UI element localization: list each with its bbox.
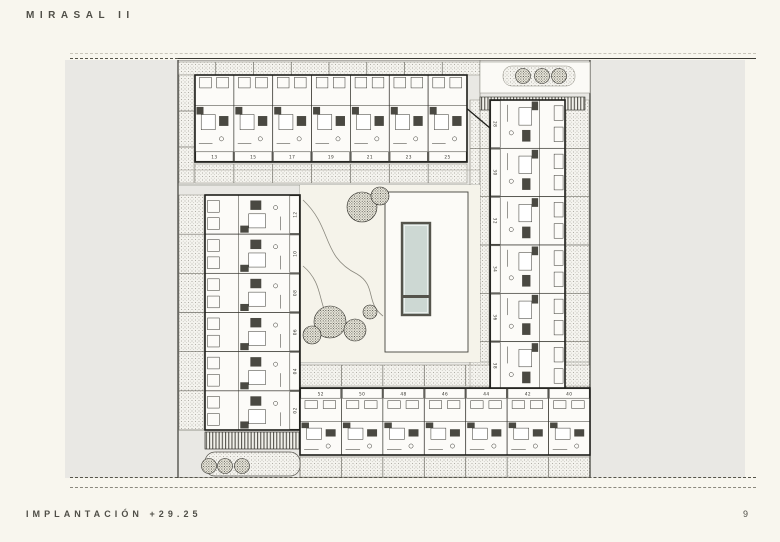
- blueprint-sheet: 1315171921232528303234363812100806040252…: [65, 60, 745, 478]
- unit-number: 32: [492, 218, 498, 224]
- unit-number: 25: [444, 154, 450, 160]
- housing-unit: 36: [490, 293, 565, 341]
- unit-number: 19: [328, 154, 334, 160]
- top-rule-dashed: [70, 53, 756, 54]
- housing-unit: 40: [549, 388, 590, 455]
- housing-unit: 46: [424, 388, 465, 455]
- unit-number: 21: [367, 154, 373, 160]
- garden-strip-top: [178, 62, 480, 75]
- garden-strip-below-top-row: [195, 164, 467, 183]
- drawing-caption: IMPLANTACIÓN +29.25: [26, 509, 202, 519]
- top-rule-solid: [178, 58, 756, 59]
- garden-strip-top-left: [179, 75, 194, 183]
- garden-strip-below-bottom-row: [300, 457, 590, 477]
- housing-unit: 06: [205, 313, 300, 352]
- top-rule-left: [70, 58, 178, 59]
- housing-unit: 38: [490, 342, 565, 390]
- tree-icon: [344, 319, 366, 341]
- unit-number: 44: [483, 391, 489, 397]
- portfolio-page: MIRASAL II 13151719212325283032343638121…: [0, 0, 780, 542]
- swimming-pool: [402, 223, 430, 315]
- bottom-rule-dashed: [70, 477, 756, 478]
- housing-unit: 13: [195, 75, 234, 162]
- housing-unit: 44: [466, 388, 507, 455]
- housing-unit: 50: [341, 388, 382, 455]
- unit-number: 50: [359, 391, 365, 397]
- unit-number: 02: [292, 407, 298, 413]
- unit-number: 04: [292, 368, 298, 374]
- page-number: 9: [743, 509, 748, 519]
- unit-number: 46: [442, 391, 448, 397]
- unit-number: 23: [406, 154, 412, 160]
- site-plan-drawing: 1315171921232528303234363812100806040252…: [65, 60, 745, 478]
- tree-icon: [371, 187, 389, 205]
- housing-unit: 25: [428, 75, 467, 162]
- bottom-rule-dashed-2: [70, 487, 756, 488]
- unit-number: 28: [492, 121, 498, 127]
- unit-number: 48: [400, 391, 406, 397]
- unit-number: 42: [525, 391, 531, 397]
- housing-unit: 19: [312, 75, 351, 162]
- housing-unit: 17: [273, 75, 312, 162]
- housing-unit: 23: [389, 75, 428, 162]
- housing-unit: 34: [490, 245, 565, 293]
- garden-strip-left: [179, 195, 204, 430]
- housing-unit: 52: [300, 388, 341, 455]
- tree-icon: [303, 326, 321, 344]
- unit-number: 17: [289, 154, 295, 160]
- tree-icon: [202, 459, 217, 474]
- tree-icon: [218, 459, 233, 474]
- tree-icon: [516, 69, 531, 84]
- tree-icon: [363, 305, 377, 319]
- left-column-units: 121008060402: [205, 195, 300, 430]
- garden-strip-right-outer: [566, 100, 589, 390]
- tree-icon: [535, 69, 550, 84]
- housing-unit: 30: [490, 148, 565, 196]
- unit-number: 12: [292, 211, 298, 217]
- unit-number: 10: [292, 251, 298, 257]
- unit-number: 13: [211, 154, 217, 160]
- top-row-units: 13151719212325: [195, 75, 467, 162]
- unit-number: 36: [492, 314, 498, 320]
- housing-unit: 32: [490, 197, 565, 245]
- bottom-row-units: 52504846444240: [300, 388, 590, 455]
- housing-unit: 15: [234, 75, 273, 162]
- unit-number: 40: [566, 391, 572, 397]
- housing-unit: 02: [205, 391, 300, 430]
- housing-unit: 21: [350, 75, 389, 162]
- housing-unit: 28: [490, 100, 565, 148]
- unit-number: 15: [250, 154, 256, 160]
- housing-unit: 48: [383, 388, 424, 455]
- right-column-units: 283032343638: [490, 100, 565, 390]
- unit-number: 38: [492, 363, 498, 369]
- housing-unit: 08: [205, 273, 300, 312]
- housing-unit: 10: [205, 234, 300, 273]
- unit-number: 08: [292, 290, 298, 296]
- housing-unit: 04: [205, 352, 300, 391]
- tree-icon: [552, 69, 567, 84]
- tree-icon: [235, 459, 250, 474]
- unit-number: 30: [492, 169, 498, 175]
- unit-number: 52: [318, 391, 324, 397]
- project-title: MIRASAL II: [26, 10, 135, 21]
- housing-unit: 12: [205, 195, 300, 234]
- unit-number: 06: [292, 329, 298, 335]
- pool-area: [385, 192, 468, 352]
- housing-unit: 42: [507, 388, 548, 455]
- unit-number: 34: [492, 266, 498, 272]
